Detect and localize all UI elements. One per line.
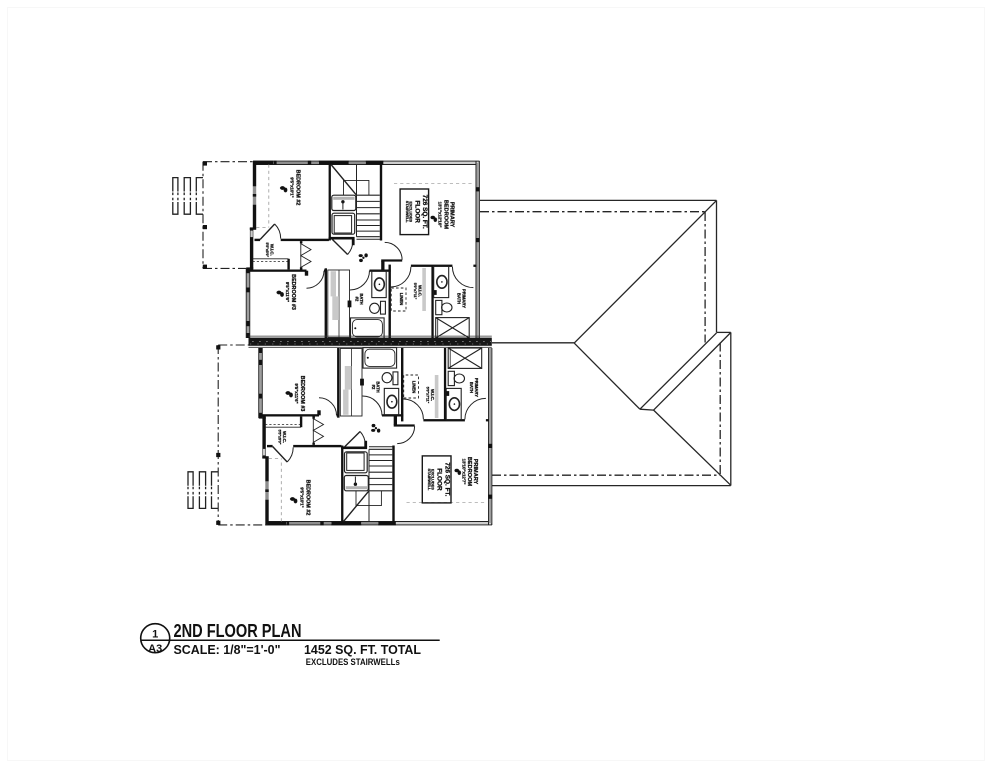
svg-text:13'10"x12'7": 13'10"x12'7"	[461, 459, 466, 485]
svg-text:EXCLUDES STAIRWELLs: EXCLUDES STAIRWELLs	[306, 657, 400, 668]
svg-text:1452 SQ. FT. TOTAL: 1452 SQ. FT. TOTAL	[304, 642, 421, 657]
svg-text:9'5"x11'6": 9'5"x11'6"	[294, 383, 299, 403]
svg-text:#2: #2	[355, 297, 360, 302]
svg-text:FLOOR: FLOOR	[414, 201, 421, 224]
svg-text:5'0"x7'11": 5'0"x7'11"	[426, 387, 430, 404]
svg-text:A3: A3	[148, 643, 162, 655]
svg-text:BATH: BATH	[469, 382, 474, 393]
svg-text:#2: #2	[371, 385, 376, 390]
svg-text:2ND FLOOR PLAN: 2ND FLOOR PLAN	[174, 621, 302, 641]
svg-text:5'0"x7'11": 5'0"x7'11"	[413, 283, 417, 300]
svg-text:726 SQ. FT.: 726 SQ. FT.	[421, 195, 428, 229]
svg-text:LINEN: LINEN	[411, 381, 416, 394]
svg-text:SCALE: 1/8"=1'-0": SCALE: 1/8"=1'-0"	[174, 642, 281, 657]
svg-text:9'5"x10'1": 9'5"x10'1"	[300, 487, 305, 507]
svg-text:5'5"x5'0": 5'5"x5'0"	[265, 242, 269, 257]
svg-text:W.I.C.: W.I.C.	[270, 244, 275, 256]
svg-text:LINEN: LINEN	[399, 293, 404, 306]
svg-text:1: 1	[152, 628, 158, 640]
svg-text:13'1"x12'10": 13'1"x12'10"	[438, 202, 443, 228]
svg-text:W.I.C.: W.I.C.	[417, 285, 422, 297]
svg-text:5'5"x5'0": 5'5"x5'0"	[278, 430, 282, 445]
svg-text:726 SQ. FT.: 726 SQ. FT.	[444, 462, 451, 496]
svg-text:9'5"x10'1": 9'5"x10'1"	[290, 177, 295, 197]
svg-text:FLOOR: FLOOR	[436, 468, 443, 491]
svg-text:STAIRWELL: STAIRWELL	[427, 469, 431, 491]
svg-text:9'5"x11'6": 9'5"x11'6"	[285, 282, 290, 302]
svg-text:W.I.C.: W.I.C.	[430, 389, 435, 401]
svg-text:W.I.C.: W.I.C.	[282, 431, 287, 443]
svg-text:BATH: BATH	[457, 293, 462, 304]
svg-text:STAIRWELL: STAIRWELL	[405, 201, 409, 223]
